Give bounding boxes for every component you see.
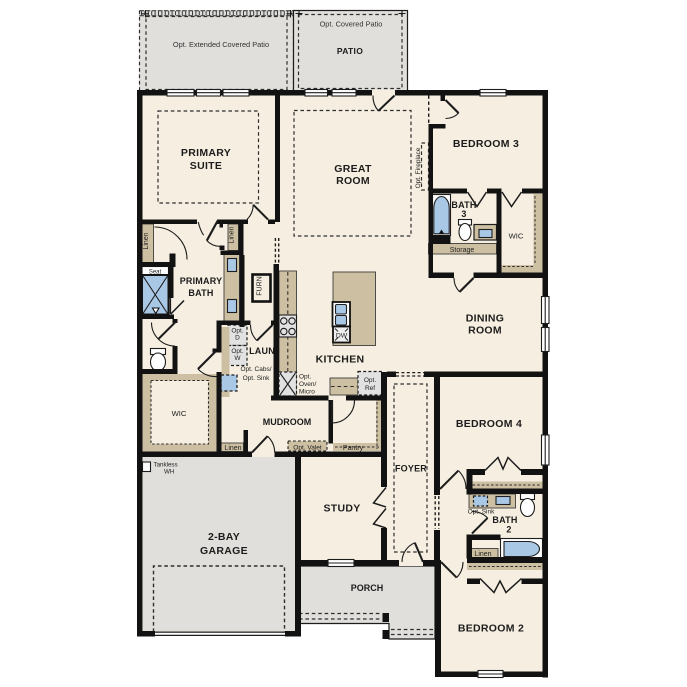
svg-text:D: D [235,335,240,342]
svg-text:FOYER: FOYER [395,464,427,474]
svg-text:3: 3 [461,209,466,219]
svg-text:BATH: BATH [188,288,213,298]
svg-text:MUDROOM: MUDROOM [263,417,312,427]
svg-text:GREAT: GREAT [334,163,372,175]
svg-text:Linen: Linen [474,551,491,558]
svg-text:Opt.: Opt. [364,377,376,384]
svg-text:Pantry: Pantry [343,445,364,452]
svg-text:Opt. Cabs/: Opt. Cabs/ [240,366,271,373]
svg-text:SUITE: SUITE [190,160,222,172]
svg-text:Opt. Fireplace: Opt. Fireplace [415,147,422,188]
svg-text:BEDROOM 2: BEDROOM 2 [458,623,524,635]
svg-text:PRIMARY: PRIMARY [180,276,223,286]
svg-text:Opt. Covered Patio: Opt. Covered Patio [320,20,383,29]
svg-text:BEDROOM 3: BEDROOM 3 [453,138,519,150]
svg-text:Opt.: Opt. [231,328,243,335]
svg-text:PRIMARY: PRIMARY [181,147,231,159]
svg-text:Oven/: Oven/ [299,381,317,388]
svg-text:Opt. Valet: Opt. Valet [293,445,322,452]
svg-text:Linen: Linen [224,445,241,452]
svg-text:WH: WH [164,469,174,476]
svg-text:STUDY: STUDY [323,503,360,515]
svg-text:Opt. Extended Covered Patio: Opt. Extended Covered Patio [173,40,269,49]
svg-text:Ref: Ref [365,385,375,392]
svg-text:Linen: Linen [229,226,236,243]
svg-text:ROOM: ROOM [468,325,502,337]
svg-text:2-BAY: 2-BAY [208,531,240,543]
svg-text:Opt. Sink: Opt. Sink [468,509,495,516]
svg-text:Opt. Sink: Opt. Sink [243,375,270,382]
svg-text:BEDROOM 4: BEDROOM 4 [456,418,522,430]
svg-text:ROOM: ROOM [336,175,370,187]
svg-text:DINING: DINING [466,313,505,325]
svg-text:W: W [234,355,241,362]
svg-text:WIC: WIC [172,409,187,418]
svg-text:DW: DW [336,333,348,340]
svg-text:Tankless: Tankless [154,462,178,469]
svg-text:PATIO: PATIO [337,46,363,56]
svg-text:KITCHEN: KITCHEN [316,354,365,366]
svg-text:2: 2 [506,525,511,535]
svg-text:Micro: Micro [299,389,315,396]
svg-text:FURN: FURN [257,276,264,295]
svg-text:Opt.: Opt. [231,348,243,355]
svg-text:LAUN: LAUN [249,346,275,356]
svg-text:Storage: Storage [450,247,475,254]
svg-text:Opt.: Opt. [299,374,311,381]
svg-text:Seat: Seat [149,270,162,276]
svg-text:PORCH: PORCH [351,583,384,593]
svg-text:GARAGE: GARAGE [200,545,248,557]
svg-text:BATH: BATH [492,515,517,525]
svg-text:WIC: WIC [509,232,524,241]
svg-text:Linen: Linen [143,232,150,249]
